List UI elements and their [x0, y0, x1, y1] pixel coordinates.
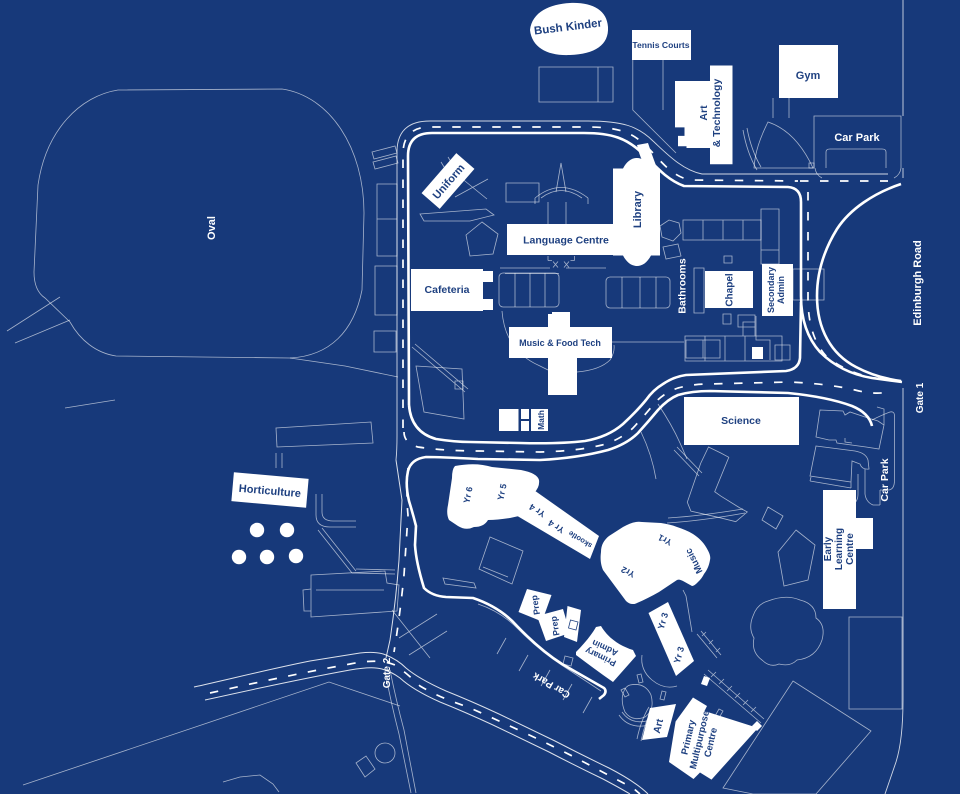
svg-text:Bathrooms: Bathrooms: [677, 258, 689, 314]
svg-text:Science: Science: [721, 415, 761, 427]
svg-text:Cafeteria: Cafeteria: [425, 284, 470, 296]
svg-text:Oval: Oval: [206, 216, 218, 240]
svg-text:Music & Food Tech: Music & Food Tech: [519, 338, 601, 348]
svg-text:Edinburgh Road: Edinburgh Road: [912, 240, 924, 326]
svg-text:Secondary: Secondary: [766, 267, 776, 313]
svg-text:Math: Math: [536, 410, 546, 430]
svg-text:Gate 2: Gate 2: [382, 657, 393, 688]
svg-text:Admin: Admin: [776, 276, 786, 304]
svg-text:Language Centre: Language Centre: [523, 235, 609, 247]
svg-text:Centre: Centre: [845, 533, 856, 565]
svg-text:Early: Early: [823, 536, 834, 561]
svg-text:Art: Art: [698, 105, 710, 121]
svg-text:Gate 1: Gate 1: [915, 382, 926, 413]
svg-text:Library: Library: [632, 190, 644, 228]
svg-text:Car Park: Car Park: [879, 458, 891, 501]
svg-text:Gym: Gym: [796, 70, 821, 82]
svg-text:Learning: Learning: [834, 528, 845, 570]
svg-text:Chapel: Chapel: [725, 273, 736, 307]
svg-text:& Technology: & Technology: [711, 79, 723, 148]
svg-text:Tennis Courts: Tennis Courts: [632, 40, 689, 50]
svg-text:Car Park: Car Park: [834, 132, 880, 144]
